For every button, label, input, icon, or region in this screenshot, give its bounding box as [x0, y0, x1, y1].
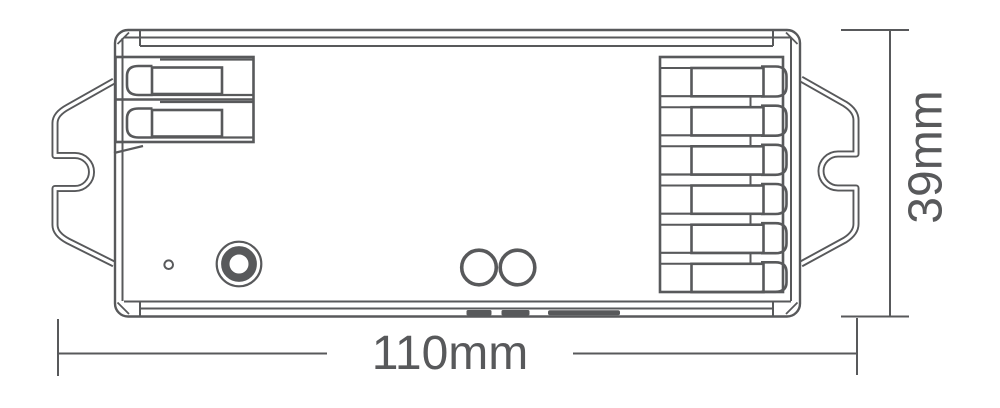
right-mounting-ear: [801, 79, 856, 264]
height-dimension: 39mm: [841, 30, 953, 317]
device-dimension-drawing: 110mm 39mm: [0, 0, 1000, 408]
width-dimension-label: 110mm: [372, 327, 529, 380]
height-dimension-label: 39mm: [900, 90, 953, 223]
left-mounting-ear: [55, 81, 114, 264]
width-dimension: 110mm: [58, 318, 857, 380]
drawing-svg: 110mm 39mm: [0, 0, 1000, 408]
